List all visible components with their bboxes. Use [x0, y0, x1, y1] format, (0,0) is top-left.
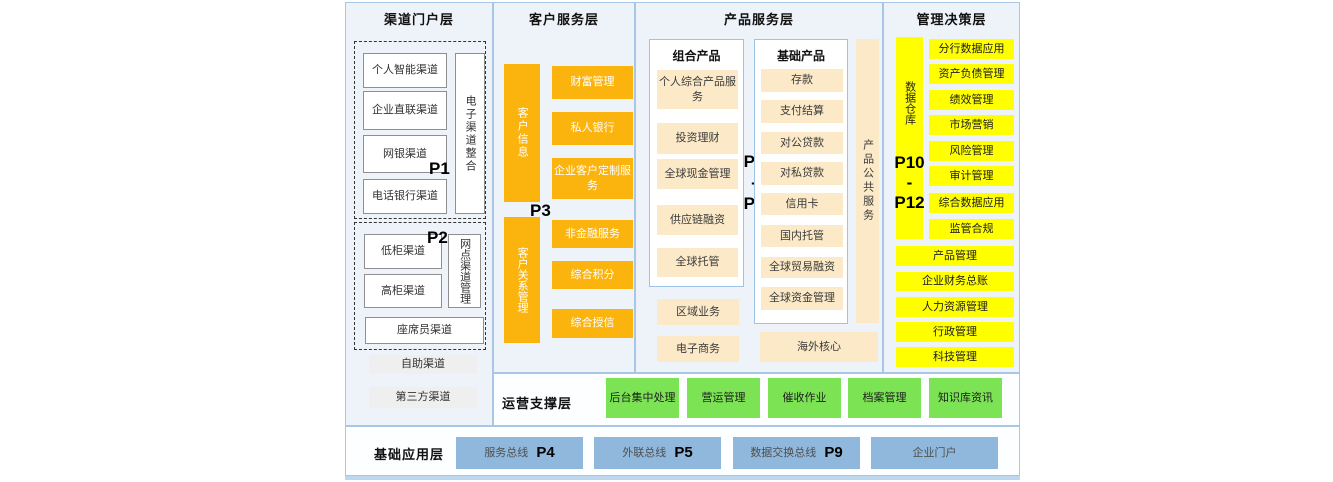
customer-box: 综合积分 [552, 261, 633, 289]
layer-product-service: 产品服务层 组合产品 个人综合产品服务 投资理财 全球现金管理 供应链融资 全球… [635, 2, 883, 373]
layer-channel-portal: 渠道门户层 个人智能渠道 企业直联渠道 网银渠道 电话银行渠道 电子渠道整合 P… [345, 2, 493, 426]
bus-box: 外联总线 P5 [594, 437, 721, 469]
combo-product-box: 个人综合产品服务 [657, 70, 738, 109]
data-warehouse-label: 数据仓库 [896, 55, 923, 151]
management-box: 科技管理 [896, 347, 1014, 367]
channel-portal-title: 渠道门户层 [346, 9, 492, 28]
combo-product-box: 电子商务 [657, 336, 739, 362]
management-box: 行政管理 [896, 322, 1014, 342]
channel-box: 座席员渠道 [365, 317, 484, 344]
combo-product-box: 投资理财 [657, 123, 738, 154]
layer-foundation-application: 基础应用层 服务总线 P4 外联总线 P5 数据交换总线 P9 企业门户 [345, 426, 1020, 476]
basic-product-box: 对公贷款 [761, 132, 843, 154]
p1-group: 个人智能渠道 企业直联渠道 网银渠道 电话银行渠道 电子渠道整合 P1 [354, 41, 486, 219]
customer-box: 企业客户定制服务 [552, 158, 633, 199]
operations-box: 催收作业 [768, 378, 841, 418]
channel-box: 高柜渠道 [364, 274, 442, 308]
management-box: 分行数据应用 [929, 39, 1014, 59]
p4-label: P4 [536, 443, 554, 463]
p5-label: P5 [674, 443, 692, 463]
combo-products-title: 组合产品 [650, 47, 743, 64]
customer-box: 私人银行 [552, 112, 633, 145]
bottom-border-strip [345, 476, 1020, 480]
combo-product-box: 全球托管 [657, 248, 738, 277]
customer-info-bar: 客户信息 [504, 64, 540, 202]
management-box: 产品管理 [896, 246, 1014, 266]
operations-box: 知识库资讯 [929, 378, 1002, 418]
layer-customer-service: 客户服务层 客户信息 P3 客户关系管理 财富管理 私人银行 企业客户定制服务 … [493, 2, 635, 373]
basic-product-box: 全球资金管理 [761, 287, 843, 310]
banking-architecture-screenshot: 渠道门户层 个人智能渠道 企业直联渠道 网银渠道 电话银行渠道 电子渠道整合 P… [0, 0, 1333, 482]
channel-box: 第三方渠道 [369, 387, 477, 408]
channel-box: 自助渠道 [369, 355, 477, 374]
basic-product-box: 存款 [761, 69, 843, 92]
management-box: 监管合规 [929, 219, 1014, 239]
layer-operations-support: 运营支撑层 后台集中处理 营运管理 催收作业 档案管理 知识库资讯 [493, 373, 1020, 426]
channel-box: 电话银行渠道 [363, 179, 447, 214]
basic-product-box: 信用卡 [761, 193, 843, 215]
basic-product-box: 全球贸易融资 [761, 257, 843, 278]
channel-box: 企业直联渠道 [363, 91, 447, 130]
customer-relationship-bar: 客户关系管理 [504, 217, 540, 343]
product-public-service-bar: 产品公共服务 [856, 39, 879, 323]
channel-box: 个人智能渠道 [363, 53, 447, 88]
operations-box: 后台集中处理 [606, 378, 679, 418]
p2-label: P2 [427, 229, 448, 248]
bus-label: 外联总线 [622, 446, 666, 460]
basic-products-group: 基础产品 存款 支付结算 对公贷款 对私贷款 信用卡 国内托管 全球贸易融资 全… [754, 39, 848, 324]
management-box: 企业财务总账 [896, 272, 1014, 291]
basic-products-title: 基础产品 [755, 47, 847, 64]
bus-label: 服务总线 [484, 446, 528, 460]
management-box: 人力资源管理 [896, 297, 1014, 317]
combo-product-box: 供应链融资 [657, 205, 738, 235]
management-decision-title: 管理决策层 [884, 9, 1019, 28]
management-box: 绩效管理 [929, 90, 1014, 110]
bus-label: 数据交换总线 [750, 446, 816, 460]
combo-products-group: 组合产品 个人综合产品服务 投资理财 全球现金管理 供应链融资 全球托管 [649, 39, 744, 287]
basic-product-box: 国内托管 [761, 225, 843, 247]
p9-label: P9 [824, 443, 842, 463]
customer-box: 非金融服务 [552, 220, 633, 248]
management-box: 风险管理 [929, 141, 1014, 161]
architecture-diagram: 渠道门户层 个人智能渠道 企业直联渠道 网银渠道 电话银行渠道 电子渠道整合 P… [345, 2, 1020, 480]
p1-label: P1 [429, 160, 450, 179]
p2-group: 低柜渠道 高柜渠道 P2 网点渠道管理 座席员渠道 [354, 222, 486, 350]
combo-product-box: 区域业务 [657, 299, 739, 325]
operations-box: 档案管理 [848, 378, 921, 418]
product-service-title: 产品服务层 [636, 9, 882, 28]
operations-box: 营运管理 [687, 378, 760, 418]
bus-box: 企业门户 [871, 437, 998, 469]
customer-service-title: 客户服务层 [494, 9, 634, 28]
combo-product-box: 全球现金管理 [657, 159, 738, 189]
p10-p12-label: P10 - P12 [888, 153, 931, 213]
electronic-channel-integration-bar: 电子渠道整合 [455, 53, 485, 214]
customer-box: 财富管理 [552, 66, 633, 99]
bus-box: 数据交换总线 P9 [733, 437, 860, 469]
management-box: 审计管理 [929, 166, 1014, 186]
data-warehouse-bar: 数据仓库 P10 - P12 [896, 37, 923, 239]
branch-channel-management-bar: 网点渠道管理 [448, 234, 481, 308]
basic-product-box: 对私贷款 [761, 162, 843, 185]
operations-support-title: 运营支撑层 [502, 393, 572, 412]
bus-box: 服务总线 P4 [456, 437, 583, 469]
foundation-application-title: 基础应用层 [374, 444, 444, 463]
basic-product-box: 海外核心 [760, 332, 878, 362]
management-box: 综合数据应用 [929, 193, 1014, 213]
layer-management-decision: 管理决策层 数据仓库 P10 - P12 分行数据应用 资产负债管理 绩效管理 … [883, 2, 1020, 373]
basic-product-box: 支付结算 [761, 100, 843, 123]
bus-label: 企业门户 [913, 446, 957, 460]
management-box: 市场营销 [929, 115, 1014, 135]
customer-box: 综合授信 [552, 309, 633, 338]
management-box: 资产负债管理 [929, 64, 1014, 84]
